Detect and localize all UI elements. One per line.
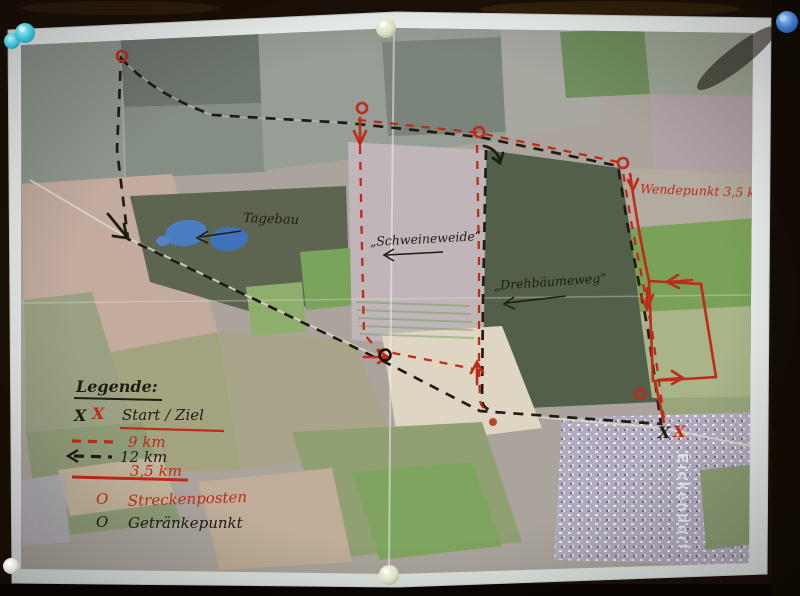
pushpin-top-right-icon: [776, 11, 798, 33]
photo-vignette: [0, 0, 800, 596]
pinned-map-scene: X X Tagebau „Schweineweide“ „Drehbäumewe…: [0, 0, 800, 596]
pushpin-top-middle-icon: [376, 18, 396, 43]
pushpin-bottom-middle-icon: [379, 565, 399, 585]
pinned-map-photo: X X Tagebau „Schweineweide“ „Drehbäumewe…: [0, 0, 800, 596]
pushpin-bottom-left-icon: [3, 558, 19, 574]
